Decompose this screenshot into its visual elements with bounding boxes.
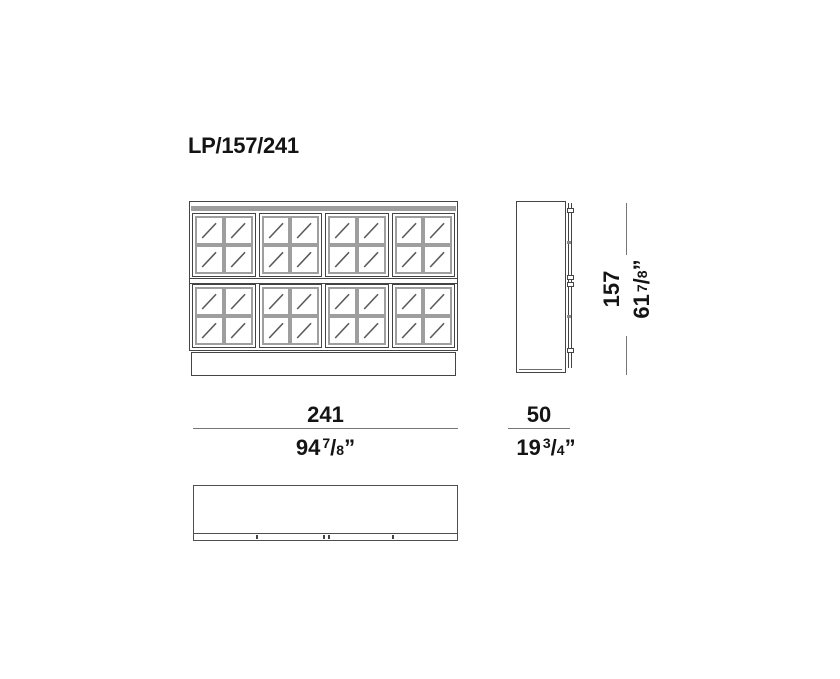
glass-pane — [226, 247, 251, 272]
glass-reflection — [292, 247, 317, 272]
glass-pane — [359, 289, 384, 314]
hinge-mark — [567, 208, 574, 213]
glass-reflection — [359, 289, 384, 314]
glass-reflection — [197, 318, 222, 343]
glass-reflection — [330, 289, 355, 314]
inch-numerator: 7 — [630, 284, 654, 292]
inch-whole: 19 — [516, 435, 540, 460]
glass-reflection — [359, 247, 384, 272]
door-division-tick — [323, 535, 325, 539]
glass-door — [325, 213, 389, 277]
inch-unit: ” — [565, 435, 576, 460]
glass-reflection — [292, 218, 317, 243]
glass-reflection — [197, 247, 222, 272]
pane-grid — [195, 216, 253, 274]
glass-reflection — [292, 318, 317, 343]
width-dimension-line — [193, 428, 458, 429]
glass-pane — [292, 318, 317, 343]
glass-pane — [330, 318, 355, 343]
pane-grid — [328, 287, 386, 345]
glass-reflection — [330, 218, 355, 243]
glass-reflection — [292, 289, 317, 314]
glass-pane — [264, 289, 289, 314]
glass-pane — [264, 247, 289, 272]
door-division-tick — [256, 535, 258, 539]
glass-pane — [197, 218, 222, 243]
shelf-mark — [567, 241, 571, 244]
height-dimension-line-bottom — [626, 336, 627, 375]
glass-pane — [264, 318, 289, 343]
glass-reflection — [264, 318, 289, 343]
glass-pane — [197, 247, 222, 272]
glass-reflection — [226, 318, 251, 343]
glass-pane — [264, 218, 289, 243]
glass-pane — [226, 318, 251, 343]
glass-pane — [330, 218, 355, 243]
front-top-rail — [191, 206, 456, 211]
front-upper-door-row — [192, 213, 455, 277]
glass-pane — [425, 247, 450, 272]
glass-reflection — [397, 318, 422, 343]
front-lower-door-row — [192, 284, 455, 348]
side-cabinet-body — [516, 201, 566, 373]
inch-unit: ” — [630, 259, 654, 270]
pane-grid — [395, 216, 453, 274]
glass-pane — [197, 289, 222, 314]
fraction-slash: / — [630, 278, 654, 284]
glass-reflection — [226, 218, 251, 243]
glass-pane — [397, 247, 422, 272]
model-code: LP/157/241 — [188, 133, 299, 159]
height-cm-label: 157 — [600, 269, 624, 309]
pane-grid — [262, 216, 320, 274]
glass-reflection — [226, 289, 251, 314]
glass-reflection — [226, 247, 251, 272]
glass-pane — [359, 318, 384, 343]
glass-pane — [425, 318, 450, 343]
front-plinth — [191, 352, 456, 376]
glass-reflection — [197, 289, 222, 314]
inch-whole: 94 — [296, 435, 320, 460]
hinge-mark — [567, 348, 574, 353]
front-cabinet-body — [189, 201, 458, 351]
depth-dimension-line — [508, 428, 570, 429]
glass-reflection — [397, 247, 422, 272]
depth-cm-label: 50 — [508, 403, 570, 427]
pane-grid — [328, 216, 386, 274]
glass-reflection — [264, 247, 289, 272]
glass-reflection — [359, 218, 384, 243]
glass-reflection — [330, 247, 355, 272]
door-division-tick — [392, 535, 394, 539]
glass-pane — [397, 218, 422, 243]
glass-reflection — [264, 218, 289, 243]
front-view — [189, 201, 458, 377]
technical-drawing-page: LP/157/241 241 947/8” 50 193/4” 157 617/… — [0, 0, 840, 679]
glass-pane — [226, 289, 251, 314]
height-inch-label: 617/8” — [630, 259, 654, 319]
pane-grid — [395, 287, 453, 345]
glass-reflection — [330, 318, 355, 343]
glass-door — [392, 284, 456, 348]
width-cm-label: 241 — [193, 403, 458, 427]
hinge-mark — [567, 275, 574, 280]
side-plinth-line — [519, 369, 562, 370]
glass-reflection — [425, 218, 450, 243]
shelf-mark — [567, 315, 571, 318]
glass-reflection — [425, 247, 450, 272]
glass-pane — [359, 218, 384, 243]
pane-grid — [195, 287, 253, 345]
glass-reflection — [425, 289, 450, 314]
side-view — [516, 201, 578, 377]
glass-pane — [330, 247, 355, 272]
height-dimension-line-top — [626, 203, 627, 255]
plan-view — [193, 485, 458, 541]
glass-reflection — [397, 289, 422, 314]
glass-pane — [292, 247, 317, 272]
inch-denominator: 4 — [557, 442, 565, 458]
glass-pane — [226, 218, 251, 243]
glass-reflection — [197, 218, 222, 243]
glass-door — [192, 213, 256, 277]
inch-numerator: 3 — [543, 435, 551, 451]
width-inch-label: 947/8” — [193, 431, 458, 462]
glass-reflection — [264, 289, 289, 314]
door-division-tick — [328, 535, 330, 539]
glass-door — [192, 284, 256, 348]
inch-numerator: 7 — [322, 435, 330, 451]
glass-door — [392, 213, 456, 277]
depth-inch-label: 193/4” — [503, 431, 589, 462]
glass-pane — [292, 218, 317, 243]
glass-pane — [397, 289, 422, 314]
glass-reflection — [397, 218, 422, 243]
glass-door — [325, 284, 389, 348]
glass-pane — [292, 289, 317, 314]
glass-reflection — [425, 318, 450, 343]
pane-grid — [262, 287, 320, 345]
inch-denominator: 8 — [336, 442, 344, 458]
glass-pane — [359, 247, 384, 272]
glass-pane — [425, 218, 450, 243]
glass-pane — [425, 289, 450, 314]
plan-front-edge-line — [194, 533, 457, 534]
inch-unit: ” — [344, 435, 355, 460]
inch-denominator: 8 — [630, 270, 654, 278]
glass-door — [259, 284, 323, 348]
glass-pane — [197, 318, 222, 343]
hinge-mark — [567, 282, 574, 287]
glass-pane — [397, 318, 422, 343]
inch-whole: 61 — [630, 294, 654, 318]
glass-reflection — [359, 318, 384, 343]
glass-pane — [330, 289, 355, 314]
glass-door — [259, 213, 323, 277]
